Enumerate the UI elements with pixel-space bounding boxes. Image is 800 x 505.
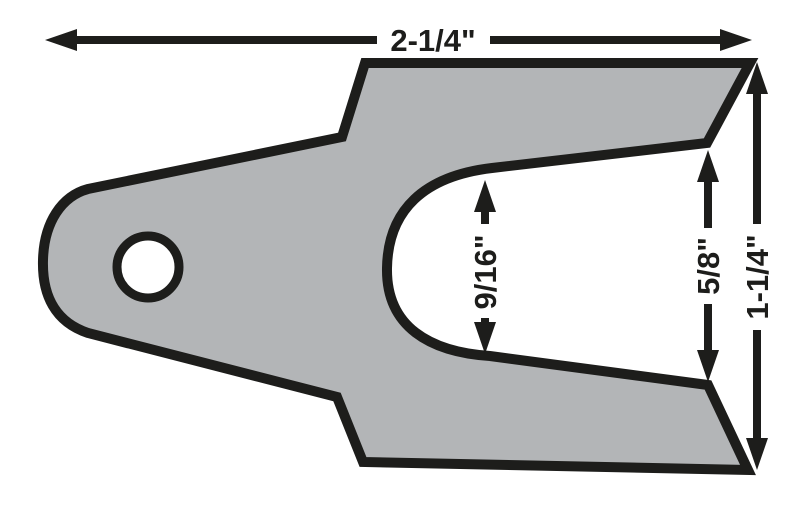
shim-part [43,63,750,470]
width-dimension: 2-1/4" [45,23,752,58]
technical-drawing-canvas: 2-1/4" 9/16" 5/8" 1-1/4" [0,0,800,505]
height-dimension-label: 1-1/4" [740,234,775,319]
shim-diagram: 2-1/4" 9/16" 5/8" 1-1/4" [0,0,800,505]
width-dimension-label: 2-1/4" [390,23,475,58]
arrowhead-right-icon [720,29,752,51]
height-dimension: 1-1/4" [740,62,775,470]
arrowhead-down-icon [697,350,719,382]
fork-opening-dimension: 5/8" [691,150,726,382]
arrowhead-down-icon [474,322,496,354]
slot-height-dimension-label: 9/16" [468,234,503,309]
mounting-hole [117,236,179,298]
slot-height-dimension: 9/16" [468,180,503,354]
fork-opening-dimension-label: 5/8" [691,237,726,295]
